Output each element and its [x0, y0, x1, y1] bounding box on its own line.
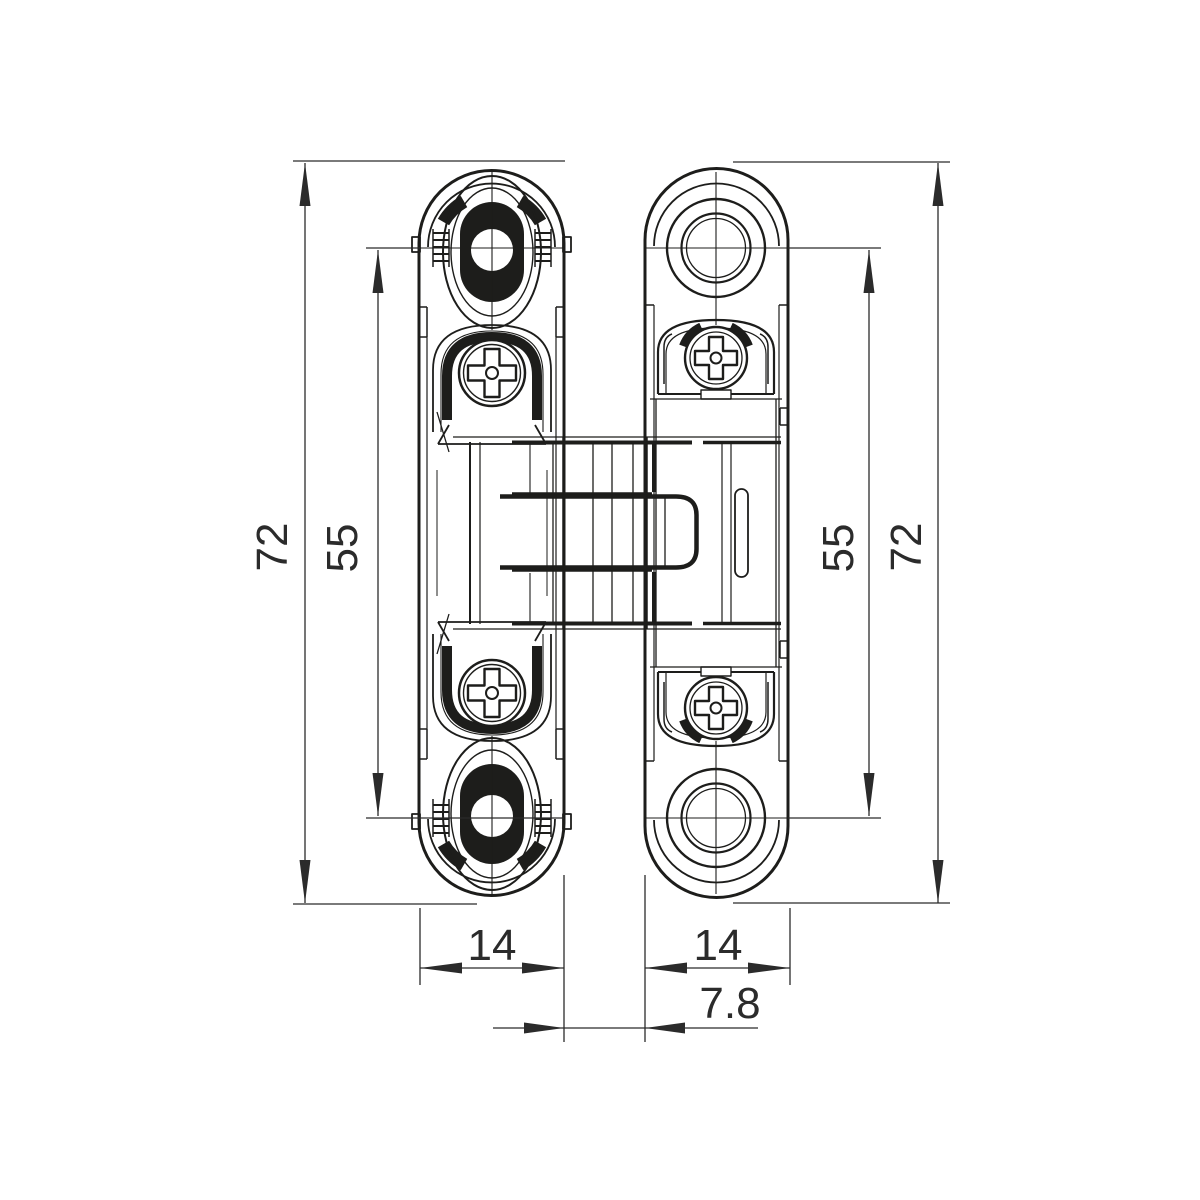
arrow-right — [522, 963, 564, 974]
hinge-technical-drawing: 72 55 55 72 14 14 7.8 — [0, 0, 1200, 1200]
arrow-down — [300, 860, 311, 903]
dim-label-72-left: 72 — [248, 523, 297, 572]
dimension-annotations — [293, 161, 950, 1042]
arrow-left — [420, 963, 462, 974]
phillips-screw — [433, 325, 551, 444]
arrow-down — [933, 860, 944, 903]
dim-label-7-8: 7.8 — [699, 979, 760, 1028]
dim-label-55-right: 55 — [814, 524, 863, 573]
dim-label-55-left: 55 — [318, 524, 367, 573]
arrow-up — [300, 163, 311, 206]
arrow-left — [645, 963, 687, 974]
dimension-labels: 72 55 55 72 14 14 7.8 — [248, 523, 931, 1028]
dim-label-14-left: 14 — [468, 921, 517, 970]
drawing-canvas: 72 55 55 72 14 14 7.8 — [0, 0, 1200, 1200]
arrow-right — [748, 963, 790, 974]
dim-label-72-right: 72 — [882, 523, 931, 572]
link-tongue — [500, 497, 697, 568]
right-hinge-leaf — [645, 168, 788, 533]
arrow-up — [373, 250, 384, 293]
round-hole — [645, 172, 788, 325]
arrow-left — [645, 1023, 685, 1034]
left-hinge-leaf-bottom — [412, 533, 571, 896]
phillips-screw — [650, 320, 782, 533]
hatched-ear-right — [535, 229, 551, 267]
hatched-ear-left — [433, 229, 449, 267]
arrow-up — [864, 250, 875, 293]
arrow-up — [933, 163, 944, 206]
left-hinge-leaf — [412, 171, 571, 534]
hinge-link-mechanism — [437, 412, 781, 654]
arrow-right — [524, 1023, 564, 1034]
oval-slot-hole — [420, 172, 564, 330]
arrow-down — [373, 773, 384, 816]
link-pin-slot — [735, 489, 748, 577]
arrow-down — [864, 773, 875, 816]
dim-label-14-right: 14 — [694, 921, 743, 970]
right-hinge-leaf-bottom — [645, 533, 788, 898]
